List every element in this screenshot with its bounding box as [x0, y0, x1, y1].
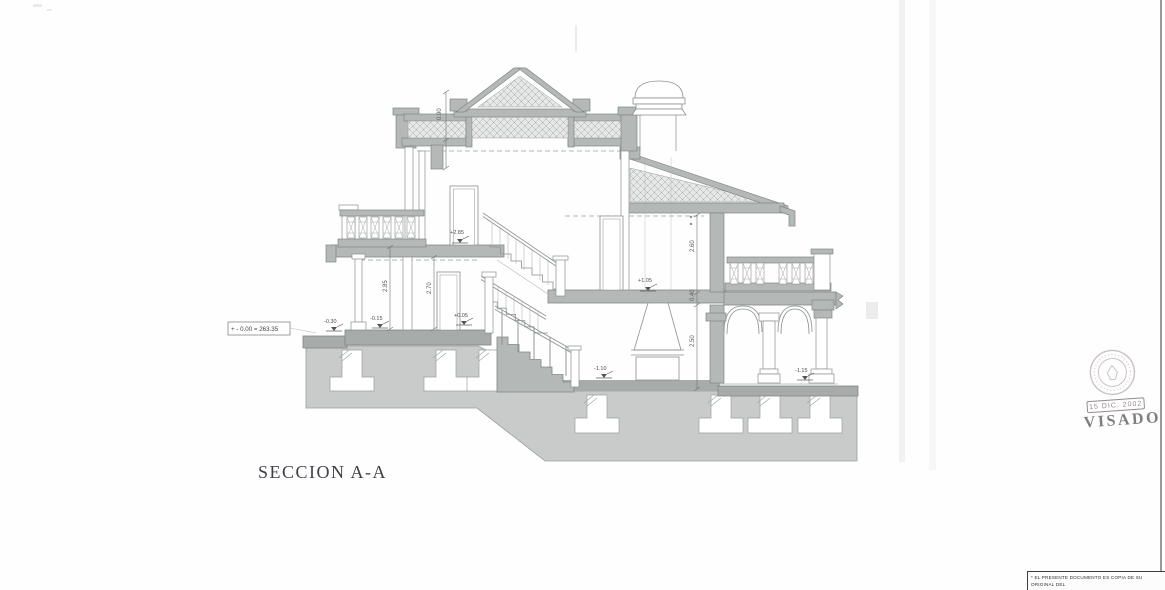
- balustrade-pier-cap: [811, 249, 833, 254]
- ground-slab-edge: [303, 336, 347, 348]
- faint-wall-fragment: [866, 302, 878, 319]
- blueprint-page: 0.90 2.60 0.40 2.50 2.85 2.70 +2.85 +1.0…: [0, 0, 1165, 590]
- newel-cap-basement: [568, 346, 581, 350]
- marker-terrace-step: -0.15: [370, 316, 383, 322]
- newel-post-middle: [485, 276, 493, 333]
- stamp: 15 DIC. 2002 VISADO: [1079, 346, 1159, 445]
- terrace-slab-molding: [836, 292, 843, 309]
- marker-basement-left: -1.10: [594, 366, 607, 372]
- roof-dot: [690, 223, 692, 225]
- newel-cap-upper: [553, 256, 568, 260]
- pediment-base-band: [454, 109, 586, 117]
- marker-upper-floor: +2.85: [450, 230, 464, 236]
- note-line-1: * EL PRESENTE DOCUMENTO ES COPIA DE SU O…: [1031, 574, 1165, 588]
- right-wall-top: [621, 115, 637, 151]
- party-wall-upper: [710, 213, 724, 292]
- dim-parapet: 0.90: [437, 108, 443, 120]
- parapet-lattice-left: [408, 121, 466, 138]
- note-box: * EL PRESENTE DOCUMENTO ES COPIA DE SU O…: [1027, 571, 1165, 590]
- pier-impost: [706, 313, 726, 321]
- ground-slab: [345, 330, 491, 345]
- stamp-seal-icon: [1087, 347, 1138, 398]
- dim-right-upper: 2.60: [690, 240, 696, 252]
- stair-soffit: [497, 260, 560, 302]
- newel-cap-middle: [482, 272, 496, 277]
- parapet-bottom-rail-right: [568, 138, 628, 146]
- chimney-cap: [632, 81, 686, 115]
- reference-leader: [290, 328, 316, 333]
- newel-post-upper: [556, 259, 565, 296]
- marker-mid-landing: +1.05: [638, 278, 652, 284]
- eave-hook: [780, 206, 795, 226]
- mid-floor-slab: [548, 290, 726, 303]
- section-drawing: 0.90 2.60 0.40 2.50 2.85 2.70 +2.85 +1.0…: [0, 0, 1165, 590]
- section-title: SECCION A-A: [258, 462, 387, 482]
- roof-dot: [690, 216, 692, 218]
- fireplace: [631, 303, 684, 380]
- parapet-lattice-right: [572, 121, 624, 138]
- dim-right-slab: 0.40: [690, 289, 696, 301]
- basement-slab-right: [718, 386, 858, 396]
- balusters-right: [730, 263, 813, 284]
- marker-entry: +0.05: [454, 313, 468, 319]
- arcade-column-2: [809, 300, 834, 383]
- slab-corbel: [326, 245, 336, 262]
- beam-downstand: [431, 145, 443, 169]
- marker-terrace-low: -0.30: [324, 319, 337, 325]
- stair-flight-basement: [497, 337, 574, 392]
- stair-rail-upper: [483, 213, 561, 270]
- balustrade-end-pier: [814, 251, 830, 290]
- marker-basement-right: -1.15: [795, 368, 808, 374]
- dim-clear-left: 2.70: [427, 282, 433, 294]
- balustrade-rail-left: [340, 210, 424, 216]
- stamp-visado-label: VISADO: [1083, 409, 1158, 432]
- balustrade-base-left: [338, 239, 426, 247]
- dim-floor-left: 2.85: [383, 280, 389, 292]
- dim-right-clear: 2.50: [690, 335, 696, 347]
- chimney-shaft: [640, 115, 676, 151]
- newel-post-basement: [571, 349, 579, 387]
- roof-eave-band: [624, 203, 784, 213]
- reference-level-text: + - 0.00 = 263.35: [231, 326, 279, 333]
